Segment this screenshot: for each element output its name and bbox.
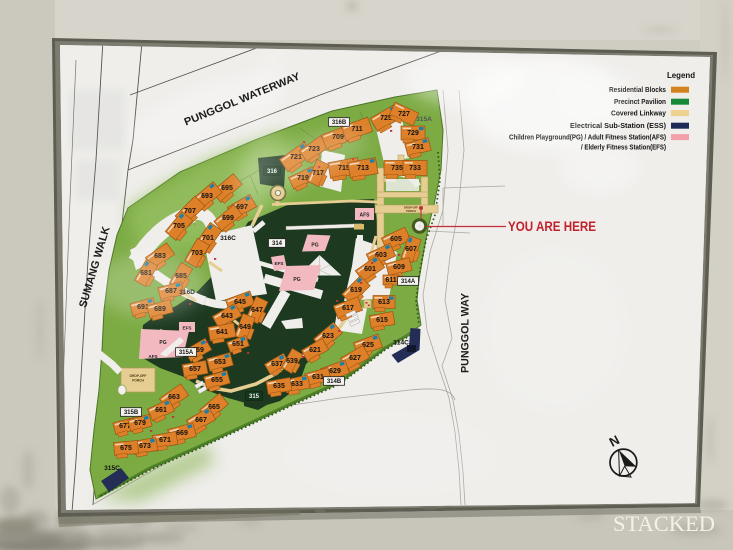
svg-text:605: 605 xyxy=(390,236,402,243)
svg-text:695: 695 xyxy=(221,185,233,192)
svg-text:635: 635 xyxy=(273,383,285,390)
svg-text:PG: PG xyxy=(293,277,300,283)
svg-text:PG: PG xyxy=(311,243,318,249)
svg-text:667: 667 xyxy=(195,417,207,424)
svg-text:AFS: AFS xyxy=(148,354,157,359)
svg-text:EFS: EFS xyxy=(183,326,192,331)
svg-text:AFS: AFS xyxy=(360,213,371,219)
svg-text:705: 705 xyxy=(173,223,185,230)
svg-text:627: 627 xyxy=(349,355,361,362)
svg-text:611: 611 xyxy=(385,277,396,284)
svg-text:315A: 315A xyxy=(416,116,432,123)
svg-text:314B: 314B xyxy=(327,379,342,385)
svg-text:PG: PG xyxy=(159,340,166,346)
svg-text:DROP-OFF: DROP-OFF xyxy=(130,374,147,378)
svg-text:607: 607 xyxy=(405,246,417,253)
svg-text:314A: 314A xyxy=(401,279,416,285)
svg-text:615: 615 xyxy=(376,317,388,324)
svg-text:609: 609 xyxy=(393,264,405,271)
svg-text:703: 703 xyxy=(191,250,203,257)
svg-text:623: 623 xyxy=(322,333,334,340)
svg-text:315A: 315A xyxy=(179,350,194,356)
svg-text:671: 671 xyxy=(159,437,171,444)
svg-text:621: 621 xyxy=(309,347,321,354)
svg-text:649: 649 xyxy=(239,324,251,331)
svg-text:315: 315 xyxy=(249,394,260,400)
svg-text:601: 601 xyxy=(364,266,376,273)
svg-text:/ Elderly Fitness Station(EFS): / Elderly Fitness Station(EFS) xyxy=(581,142,666,151)
svg-text:631: 631 xyxy=(312,374,324,381)
svg-text:727: 727 xyxy=(398,111,410,118)
svg-text:707: 707 xyxy=(184,208,196,215)
svg-text:316C: 316C xyxy=(220,235,236,242)
svg-text:679: 679 xyxy=(134,420,146,427)
svg-text:639: 639 xyxy=(286,358,298,365)
svg-text:693: 693 xyxy=(201,193,213,200)
svg-text:641: 641 xyxy=(216,329,228,336)
svg-text:PUNGGOL WAY: PUNGGOL WAY xyxy=(460,292,472,373)
svg-text:675: 675 xyxy=(120,445,132,452)
svg-text:651: 651 xyxy=(232,341,244,348)
svg-text:629: 629 xyxy=(329,368,341,375)
svg-text:647: 647 xyxy=(251,307,263,314)
svg-text:633: 633 xyxy=(291,381,303,388)
svg-text:661: 661 xyxy=(155,407,167,414)
svg-text:PORCH: PORCH xyxy=(406,209,416,213)
svg-text:713: 713 xyxy=(357,165,369,172)
svg-text:PORCH: PORCH xyxy=(132,379,144,383)
svg-text:Legend: Legend xyxy=(667,71,695,80)
svg-text:EFS: EFS xyxy=(275,261,284,266)
svg-text:314: 314 xyxy=(272,241,283,247)
svg-text:315B: 315B xyxy=(124,410,139,416)
svg-text:YOU ARE HERE: YOU ARE HERE xyxy=(508,219,596,234)
svg-text:619: 619 xyxy=(350,287,362,294)
svg-text:657: 657 xyxy=(189,366,201,373)
svg-text:701: 701 xyxy=(202,235,214,242)
svg-text:699: 699 xyxy=(222,215,234,222)
svg-text:643: 643 xyxy=(221,313,233,320)
svg-text:729: 729 xyxy=(407,130,419,137)
svg-text:315C: 315C xyxy=(104,465,120,472)
svg-text:655: 655 xyxy=(211,377,223,384)
svg-text:653: 653 xyxy=(214,359,226,366)
svg-text:735: 735 xyxy=(391,165,403,172)
svg-text:669: 669 xyxy=(176,430,188,437)
svg-text:733: 733 xyxy=(409,165,421,172)
svg-text:314C: 314C xyxy=(393,340,409,347)
svg-text:STACKED: STACKED xyxy=(613,511,715,536)
svg-text:613: 613 xyxy=(378,299,390,306)
svg-text:316B: 316B xyxy=(332,120,347,126)
svg-text:731: 731 xyxy=(412,144,424,151)
svg-text:673: 673 xyxy=(139,443,151,450)
